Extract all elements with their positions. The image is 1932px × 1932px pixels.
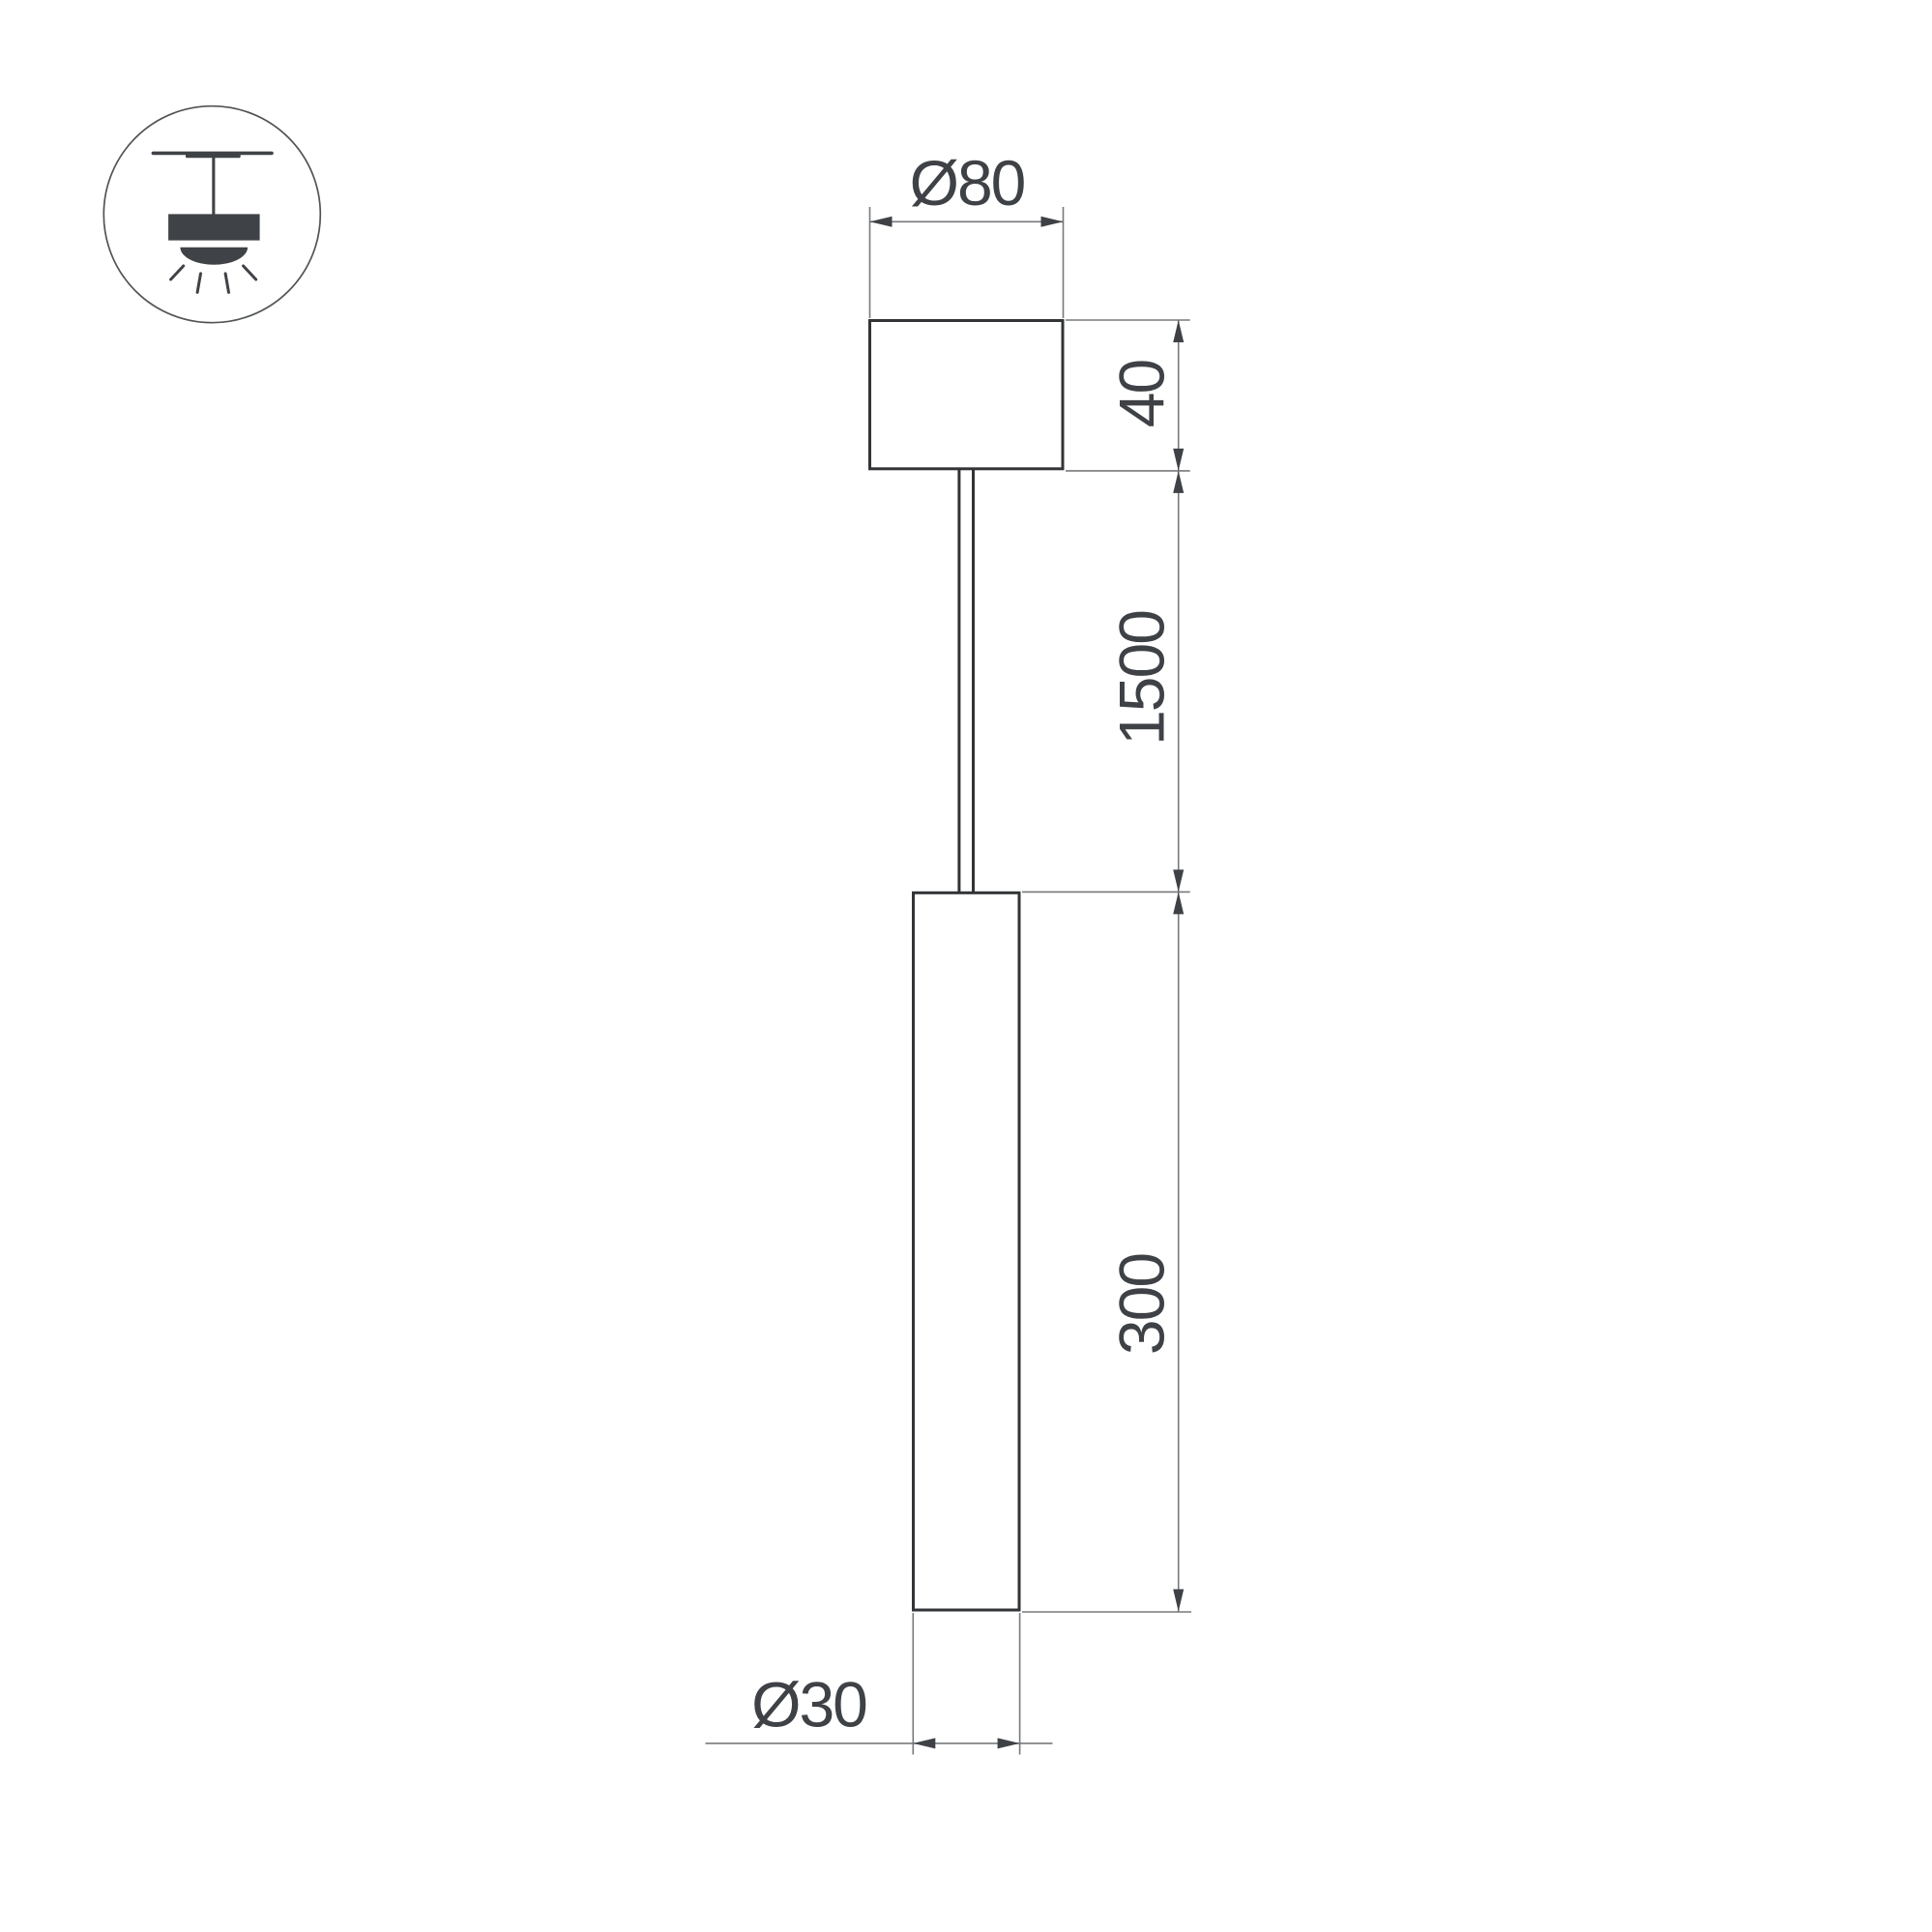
svg-text:40: 40 [1106, 361, 1178, 428]
svg-text:Ø30: Ø30 [751, 1669, 866, 1741]
svg-text:Ø80: Ø80 [910, 147, 1025, 219]
svg-text:1500: 1500 [1106, 611, 1178, 746]
svg-text:300: 300 [1106, 1254, 1178, 1355]
